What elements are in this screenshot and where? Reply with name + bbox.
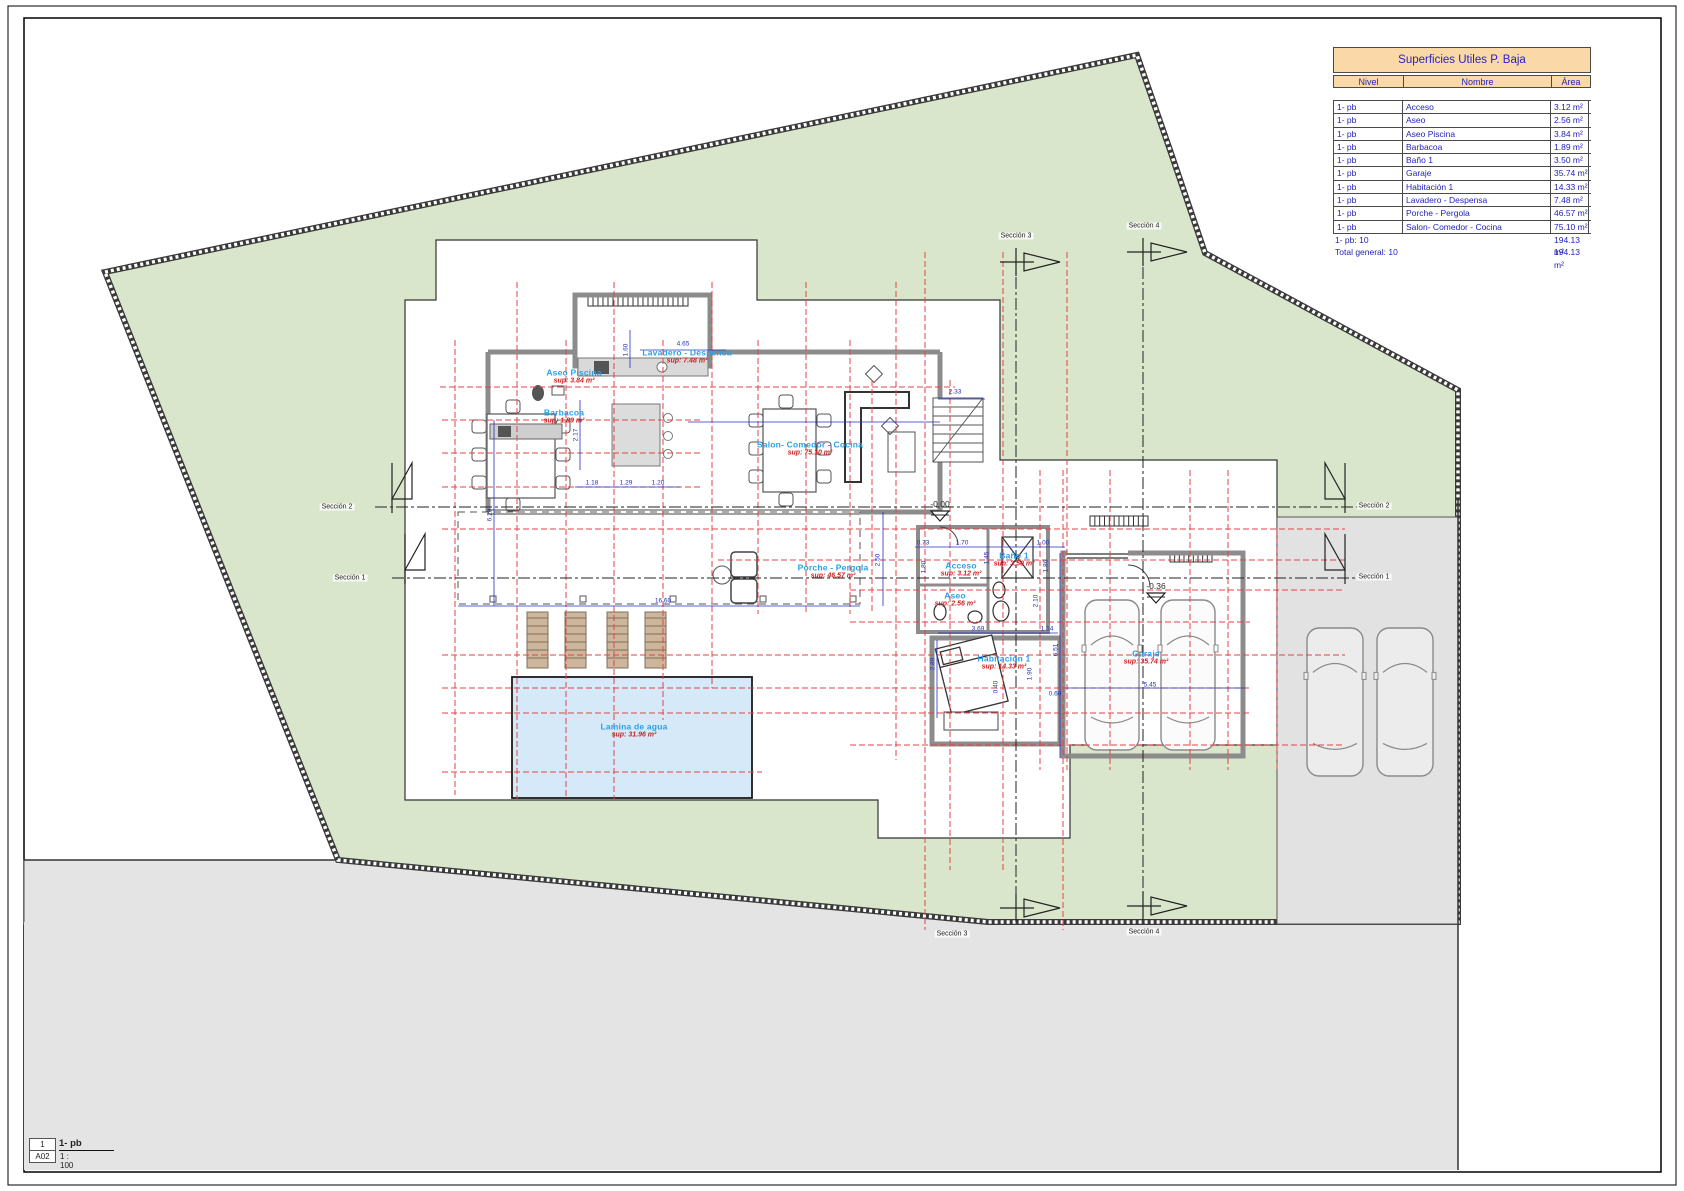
chair bbox=[749, 442, 763, 455]
chair bbox=[817, 442, 831, 455]
table-cell: 1- pb bbox=[1333, 101, 1403, 113]
table-row: 1- pbAcceso3.12 m² bbox=[1333, 101, 1591, 114]
table-row: 1- pbGaraje35.74 m² bbox=[1333, 167, 1591, 180]
table-row: 1- pbPorche - Pergola46.57 m² bbox=[1333, 207, 1591, 220]
chair bbox=[556, 448, 570, 461]
table-cell: Baño 1 bbox=[1403, 154, 1551, 166]
table-header: Nivel Nombre Área bbox=[1333, 75, 1591, 88]
pergola-post bbox=[850, 596, 856, 602]
table-cell: Acceso bbox=[1403, 101, 1551, 113]
table-cell: 1- pb bbox=[1333, 194, 1403, 206]
area-table: Superficies Utiles P. Baja Nivel Nombre … bbox=[1333, 47, 1591, 259]
table-row: 1- pbBarbacoa1.89 m² bbox=[1333, 141, 1591, 154]
pool bbox=[512, 677, 752, 798]
table-rows: 1- pbAcceso3.12 m²1- pbAseo2.56 m²1- pbA… bbox=[1333, 100, 1591, 234]
table-cell: 35.74 m² bbox=[1551, 167, 1589, 179]
table-cell: 1- pb bbox=[1333, 154, 1403, 166]
pergola-post bbox=[760, 596, 766, 602]
chair bbox=[817, 414, 831, 427]
table-cell: 3.50 m² bbox=[1551, 154, 1589, 166]
car-icon bbox=[1304, 628, 1366, 776]
sheet-code: A02 bbox=[30, 1151, 55, 1162]
chair bbox=[779, 395, 793, 408]
table-cell: 46.57 m² bbox=[1551, 207, 1589, 219]
table-row: 1- pbBaño 13.50 m² bbox=[1333, 154, 1591, 167]
table-cell: Aseo bbox=[1403, 114, 1551, 126]
table-cell: Garaje bbox=[1403, 167, 1551, 179]
chair bbox=[817, 470, 831, 483]
view-scale: 1 : 100 bbox=[60, 1152, 73, 1170]
pergola-post bbox=[580, 596, 586, 602]
table-cell: Porche - Pergola bbox=[1403, 207, 1551, 219]
detail-number: 1 bbox=[30, 1139, 55, 1151]
chair bbox=[472, 420, 486, 433]
table-cell: 1- pb bbox=[1333, 207, 1403, 219]
window-comb bbox=[1090, 516, 1148, 526]
chair bbox=[779, 493, 793, 506]
table-cell: 2.56 m² bbox=[1551, 114, 1589, 126]
table-row: 1- pbAseo2.56 m² bbox=[1333, 114, 1591, 127]
col-area: Área bbox=[1552, 76, 1590, 87]
drawing-sheet: Sección 2Sección 2Sección 1Sección 1Secc… bbox=[0, 0, 1684, 1191]
chair bbox=[749, 470, 763, 483]
table-cell: Habitación 1 bbox=[1403, 181, 1551, 193]
table-cell: 1- pb bbox=[1333, 141, 1403, 153]
table-subtotal: 1- pb: 10 194.13 m² bbox=[1333, 234, 1591, 247]
table-cell: 1.89 m² bbox=[1551, 141, 1589, 153]
col-nivel: Nivel bbox=[1334, 76, 1404, 87]
chair bbox=[749, 414, 763, 427]
table-cell: 1- pb bbox=[1333, 167, 1403, 179]
table-cell: 14.33 m² bbox=[1551, 181, 1589, 193]
col-nombre: Nombre bbox=[1404, 76, 1552, 87]
car-icon bbox=[1374, 628, 1436, 776]
table-cell: Aseo Piscina bbox=[1403, 128, 1551, 140]
pergola-post bbox=[670, 596, 676, 602]
table-row: 1- pbLavadero - Despensa7.48 m² bbox=[1333, 194, 1591, 207]
table-row: 1- pbHabitación 114.33 m² bbox=[1333, 181, 1591, 194]
table-total: Total general: 10 194.13 m² bbox=[1333, 246, 1591, 259]
table-cell: 1- pb bbox=[1333, 221, 1403, 233]
table-cell: 75.10 m² bbox=[1551, 221, 1589, 233]
chair bbox=[472, 448, 486, 461]
table-cell: 7.48 m² bbox=[1551, 194, 1589, 206]
table-title: Superficies Utiles P. Baja bbox=[1333, 47, 1591, 73]
chair bbox=[506, 498, 520, 511]
pergola-post bbox=[490, 596, 496, 602]
table-row: 1- pbAseo Piscina3.84 m² bbox=[1333, 128, 1591, 141]
table-cell: 1- pb bbox=[1333, 114, 1403, 126]
table-cell: 3.12 m² bbox=[1551, 101, 1589, 113]
table-cell: Barbacoa bbox=[1403, 141, 1551, 153]
chair bbox=[506, 400, 520, 413]
table-cell: 1- pb bbox=[1333, 128, 1403, 140]
table-cell: 1- pb bbox=[1333, 181, 1403, 193]
view-name: 1- pb bbox=[59, 1138, 114, 1151]
table-cell: Salon- Comedor - Cocina bbox=[1403, 221, 1551, 233]
table-cell: Lavadero - Despensa bbox=[1403, 194, 1551, 206]
table-row: 1- pbSalon- Comedor - Cocina75.10 m² bbox=[1333, 221, 1591, 234]
table-cell: 3.84 m² bbox=[1551, 128, 1589, 140]
